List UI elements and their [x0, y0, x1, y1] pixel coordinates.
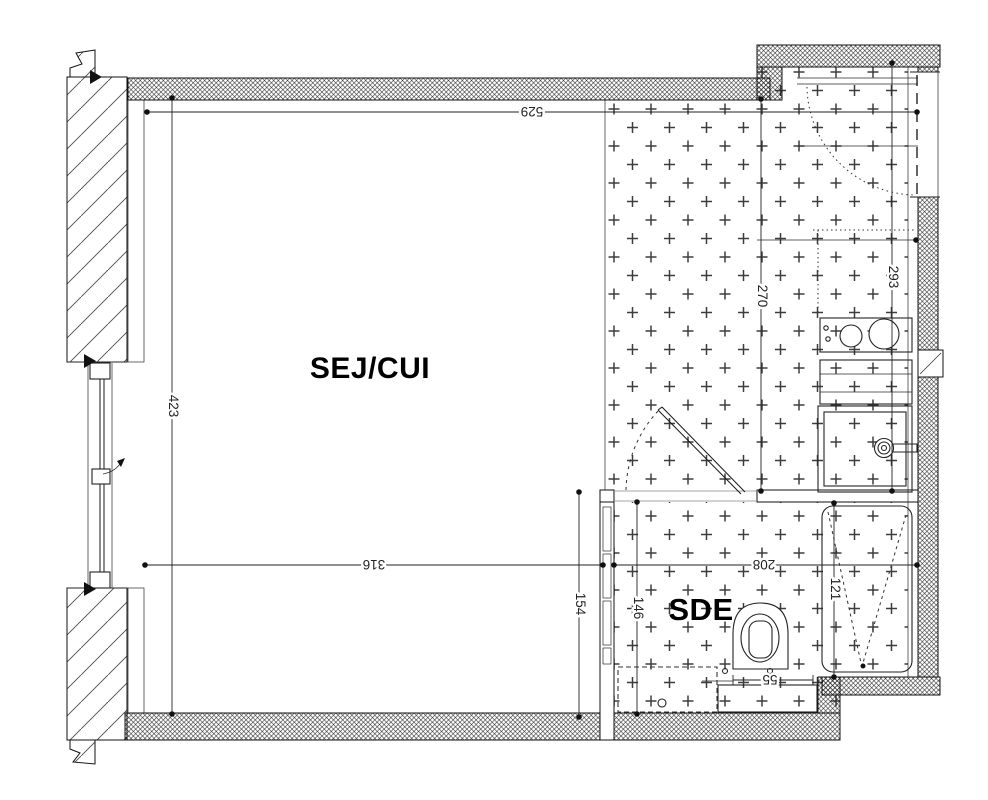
shower-drain-outer — [875, 439, 894, 458]
top-wall-entry — [757, 45, 940, 67]
room-label-sej-cui: SEJ/CUI — [310, 352, 430, 385]
dim-dot — [144, 109, 150, 115]
right-wall-upper — [918, 197, 938, 350]
top-wall-main — [128, 78, 770, 100]
dim-label-55: 55 — [762, 672, 777, 687]
sink-bowl-large — [869, 319, 899, 349]
dim-label-293: 293 — [886, 266, 901, 289]
dim-label-316: 316 — [363, 557, 386, 572]
tiled-floor-entry-kitchen — [605, 67, 908, 490]
floor-plan-page: SEJ/CUI SDE 529 423 270 293 316 208 154 … — [0, 0, 988, 800]
sde-top-partition-stub — [600, 490, 614, 502]
dim-dot — [889, 488, 895, 494]
entry-corner-stub — [757, 67, 782, 100]
dim-dot — [576, 714, 582, 720]
dim-dot — [758, 488, 764, 494]
dim-dot — [914, 109, 920, 115]
sde-left-partition — [600, 502, 614, 740]
left-wall-bottom-stub — [70, 740, 95, 764]
left-wall-upper — [67, 77, 127, 362]
dim-dot — [914, 562, 920, 568]
dim-dot — [142, 562, 148, 568]
dim-dot — [831, 500, 837, 506]
dim-dot — [831, 674, 837, 680]
dim-label-121: 121 — [828, 578, 843, 601]
dim-label-529: 529 — [521, 104, 544, 119]
dim-dot — [600, 562, 606, 568]
dim-label-423: 423 — [166, 395, 181, 418]
dim-dot — [169, 95, 175, 101]
dim-label-154: 154 — [573, 593, 588, 616]
left-wall-lower — [67, 588, 127, 740]
window-frame-top — [90, 363, 110, 379]
window-frame-middle — [92, 469, 110, 484]
dim-dot — [576, 489, 582, 495]
floor-plan-drawing: SEJ/CUI SDE 529 423 270 293 316 208 154 … — [0, 0, 988, 800]
insulation-left-upper — [128, 100, 144, 362]
dim-label-270: 270 — [755, 285, 770, 308]
dim-dot — [169, 711, 175, 717]
dim-dot — [758, 96, 764, 102]
dim-dot — [634, 499, 640, 505]
right-wall-top-bit — [918, 67, 938, 72]
room-label-sde: SDE — [668, 592, 733, 627]
insulation-left-lower — [128, 588, 144, 713]
sink-bowl-small — [840, 325, 862, 347]
bottom-wall — [125, 713, 840, 740]
dim-label-146: 146 — [631, 597, 646, 620]
bathtub-marking-dot — [861, 664, 866, 669]
dim-dot — [889, 60, 895, 66]
window-frame-bottom — [90, 572, 110, 588]
dim-dot — [634, 711, 640, 717]
closet-line-dot — [913, 237, 919, 243]
dim-label-208: 208 — [753, 557, 776, 572]
dim-dot — [611, 562, 617, 568]
corner-connector-wall — [818, 677, 840, 713]
right-wall-lower — [918, 377, 938, 677]
